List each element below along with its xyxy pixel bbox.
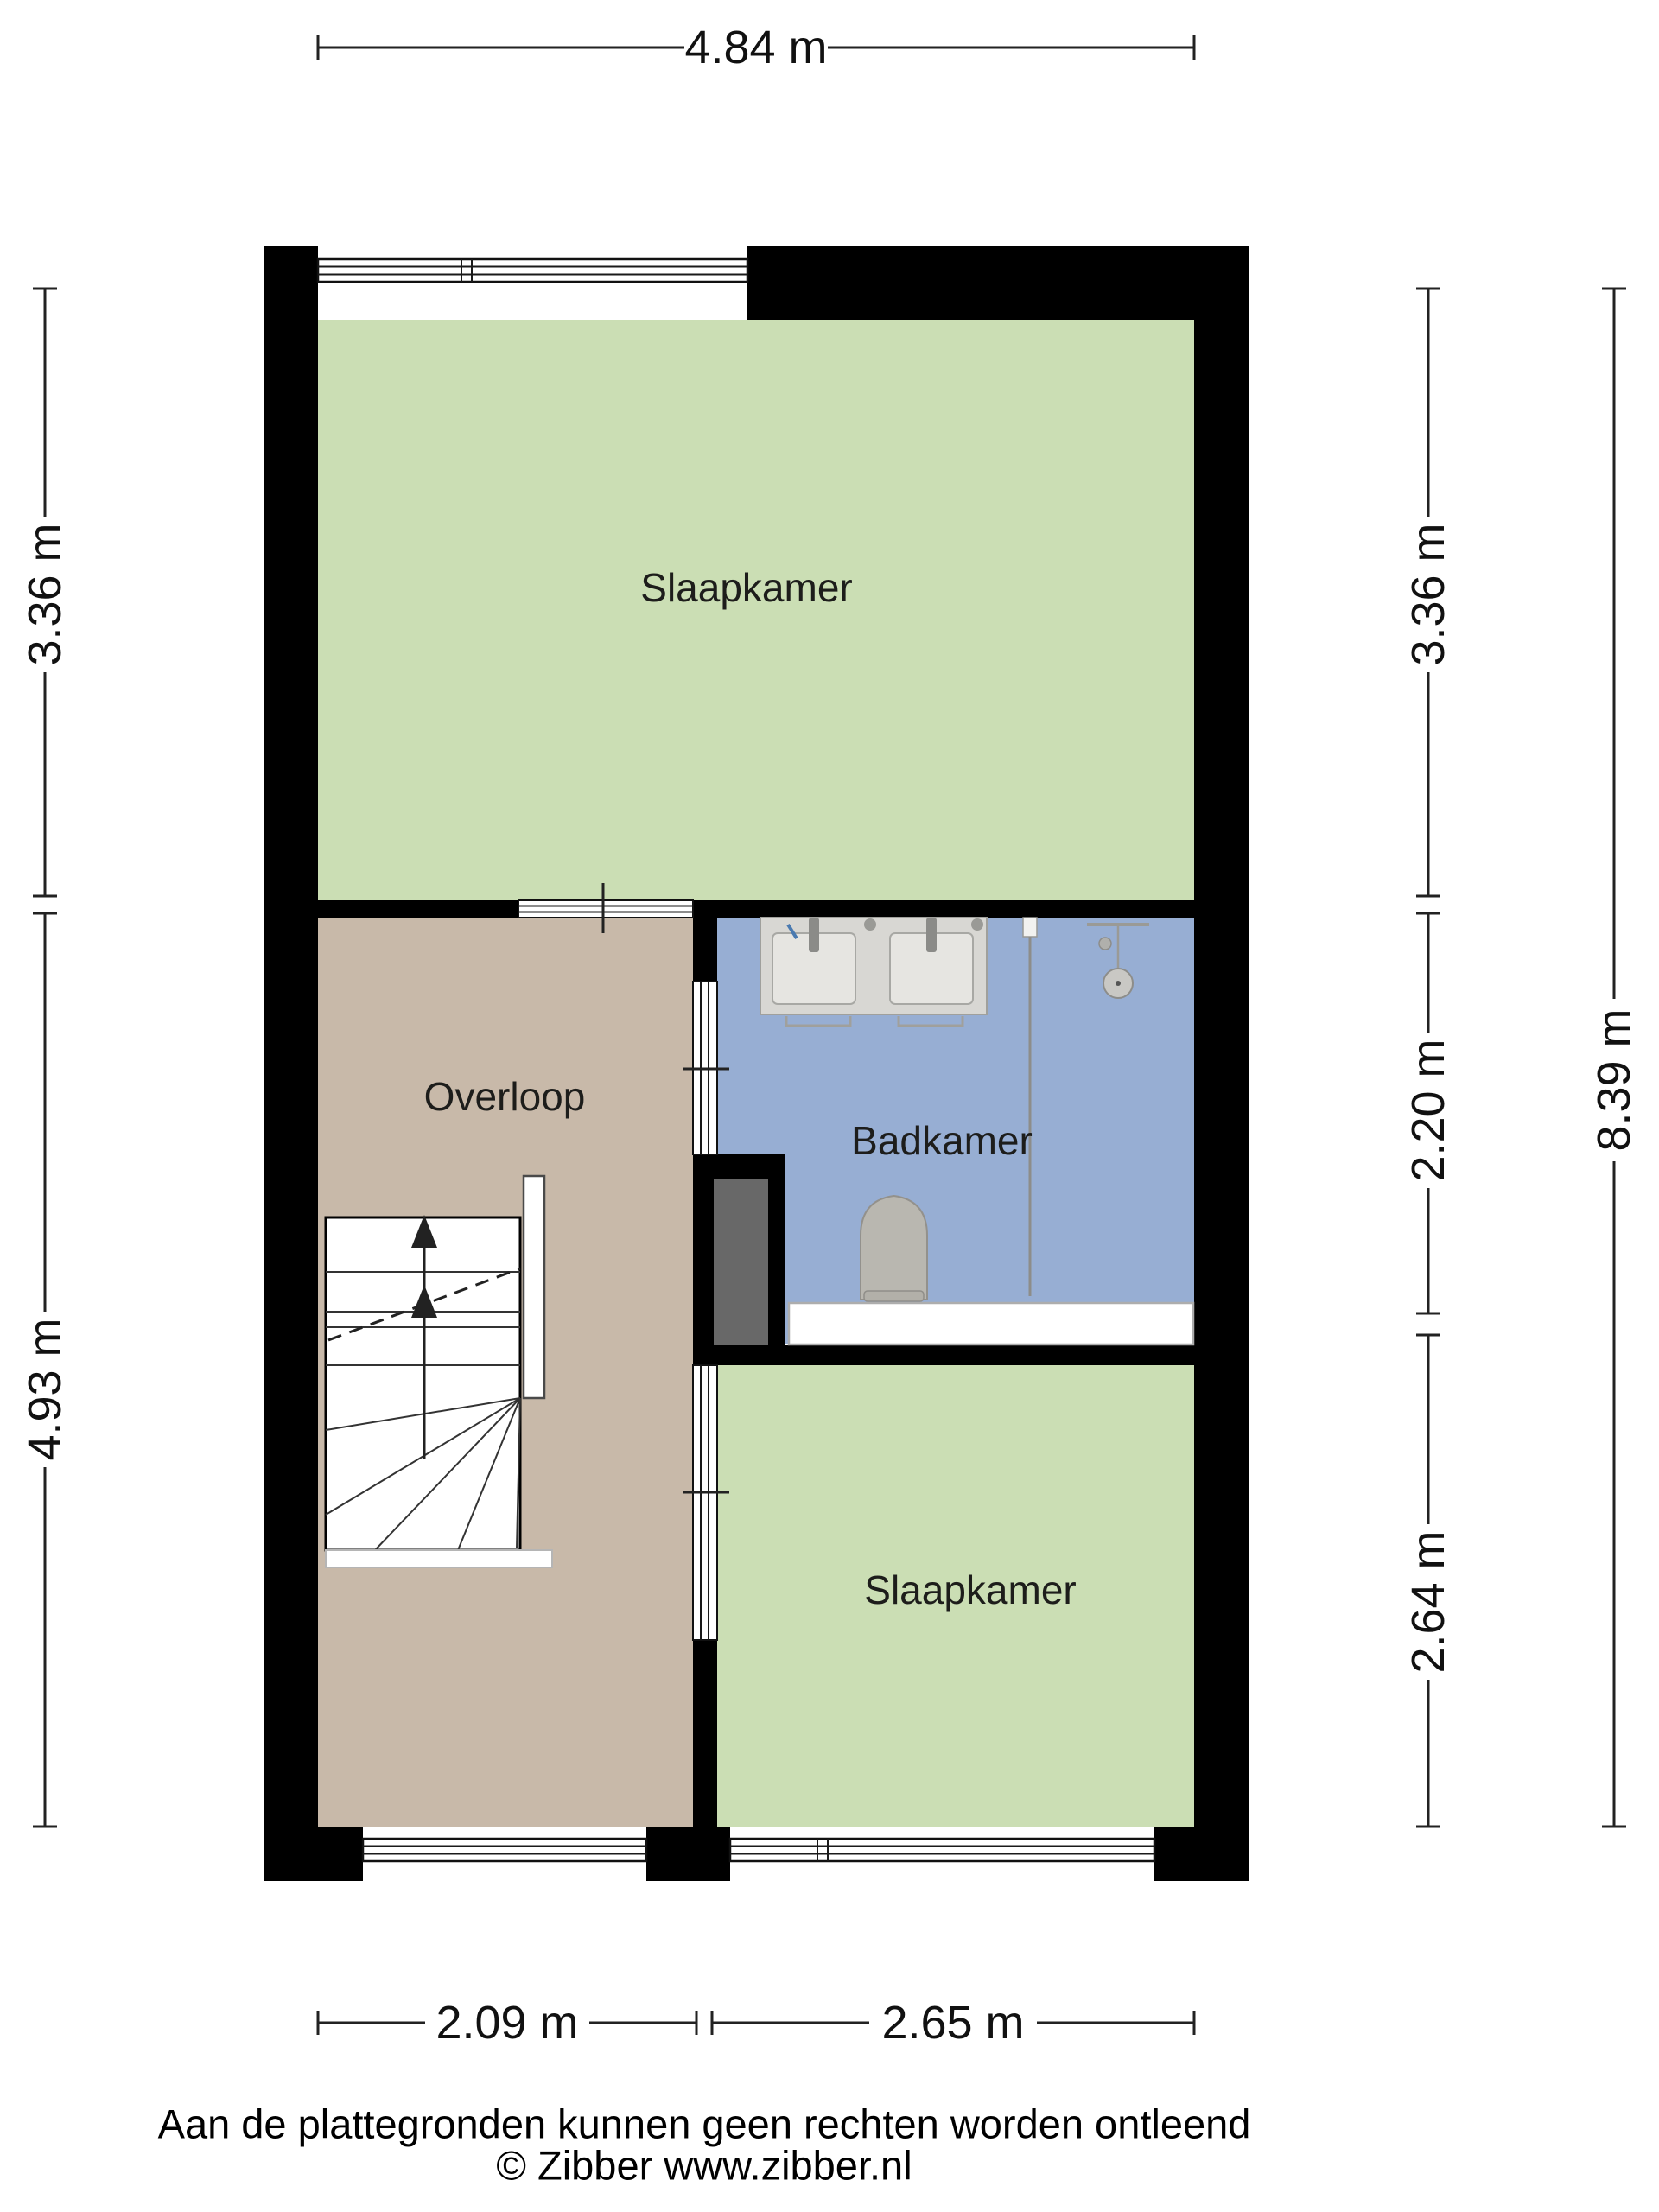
- dimension-label-left-upper: 3.36 m: [19, 523, 71, 665]
- window-bottom-right-frame: [730, 1839, 1154, 1861]
- room-label-landing: Overloop: [424, 1074, 586, 1119]
- window-top: [318, 246, 747, 320]
- room-label-bedroom-bottom: Slaapkamer: [864, 1567, 1076, 1612]
- staircase: [326, 1176, 552, 1567]
- wall-right: [1194, 246, 1249, 1881]
- window-bottom-left-frame: [363, 1839, 646, 1861]
- floor-plan-page: { "plan_type": "floor-plan", "rooms": { …: [0, 0, 1659, 2212]
- wall-bedroom-landing-left: [318, 900, 518, 918]
- dimension-label-top: 4.84 m: [684, 22, 827, 73]
- sink-drain-knob: [971, 918, 983, 931]
- stairs-handrail: [524, 1176, 544, 1398]
- room-bedroom-top-floor: [318, 320, 1194, 900]
- shower-head-center: [1116, 981, 1121, 986]
- sink-drain-knob: [864, 918, 876, 931]
- dimension-label-right-upper: 3.36 m: [1402, 523, 1454, 665]
- wall-bottom-right-corner: [1154, 1827, 1249, 1881]
- bathtub-body: [789, 1303, 1193, 1344]
- room-label-bedroom-top: Slaapkamer: [640, 565, 852, 610]
- dimension-label-left-lower: 4.93 m: [19, 1318, 71, 1460]
- room-label-bathroom: Badkamer: [851, 1118, 1033, 1163]
- dimension-label-bottom-right: 2.65 m: [881, 1997, 1024, 2049]
- wall-bottom-left-corner: [264, 1827, 363, 1881]
- wall-bathroom-bedroom: [785, 1345, 1195, 1365]
- shower-valve-icon: [1099, 938, 1111, 950]
- stairs-landing-strip: [326, 1550, 552, 1567]
- footer-copyright: © Zibber www.zibber.nl: [496, 2143, 912, 2189]
- window-top-recess: [318, 246, 747, 320]
- dimension-label-right-middle: 2.20 m: [1402, 1039, 1454, 1181]
- bathtub: [789, 1303, 1193, 1344]
- toilet-seat-bar: [864, 1291, 924, 1301]
- footer-disclaimer: Aan de plattegronden kunnen geen rechten…: [158, 2101, 1251, 2147]
- wall-left: [264, 246, 318, 1881]
- dimension-label-bottom-left: 2.09 m: [435, 1997, 578, 2049]
- window-bottom-right: [730, 1839, 1154, 1861]
- shower-rail-mount: [1023, 918, 1037, 937]
- wall-landing-bedroom-lower: [693, 1640, 717, 1827]
- toilet-bowl: [861, 1196, 927, 1300]
- wall-landing-bathroom-upper: [693, 918, 717, 982]
- faucet-icon: [926, 918, 937, 952]
- floor-plan-canvas: Slaapkamer Overloop Badkamer Slaapkamer …: [0, 0, 1659, 2212]
- window-top-frame: [318, 259, 747, 282]
- faucet-icon: [809, 918, 819, 952]
- window-bottom-left: [363, 1839, 646, 1861]
- door-opening: [693, 1365, 717, 1640]
- toilet-icon: [861, 1196, 927, 1301]
- double-sink-unit: [760, 918, 987, 1026]
- dimension-label-right-lower: 2.64 m: [1402, 1530, 1454, 1673]
- wall-bedroom-landing-right: [693, 900, 1194, 918]
- door-opening: [518, 900, 693, 918]
- wall-top-right-segment: [747, 246, 1249, 320]
- wall-bottom-pier: [646, 1827, 730, 1881]
- dimension-label-right-total: 8.39 m: [1588, 1008, 1640, 1151]
- duct-shaft: [714, 1179, 768, 1345]
